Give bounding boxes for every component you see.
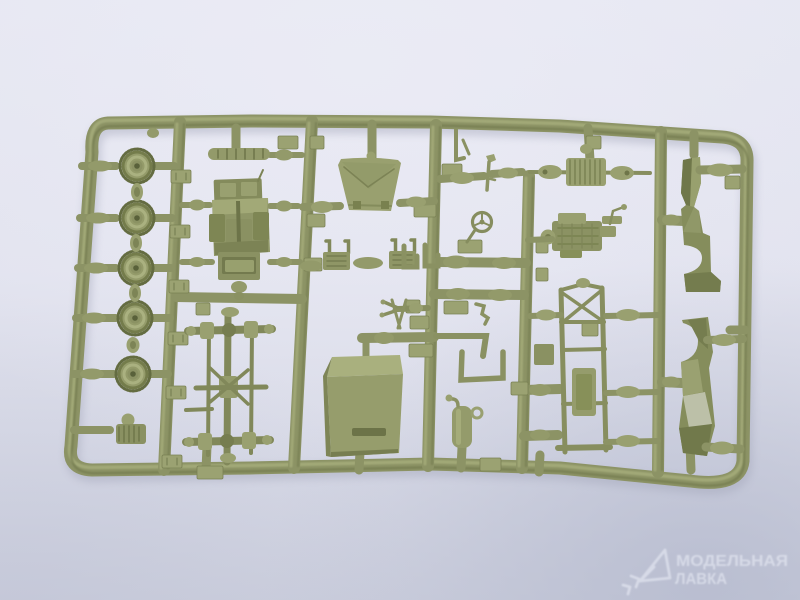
svg-text:ЛАВКА: ЛАВКА <box>675 571 727 588</box>
svg-text:МОДЕЛЬНАЯ: МОДЕЛЬНАЯ <box>676 553 788 570</box>
